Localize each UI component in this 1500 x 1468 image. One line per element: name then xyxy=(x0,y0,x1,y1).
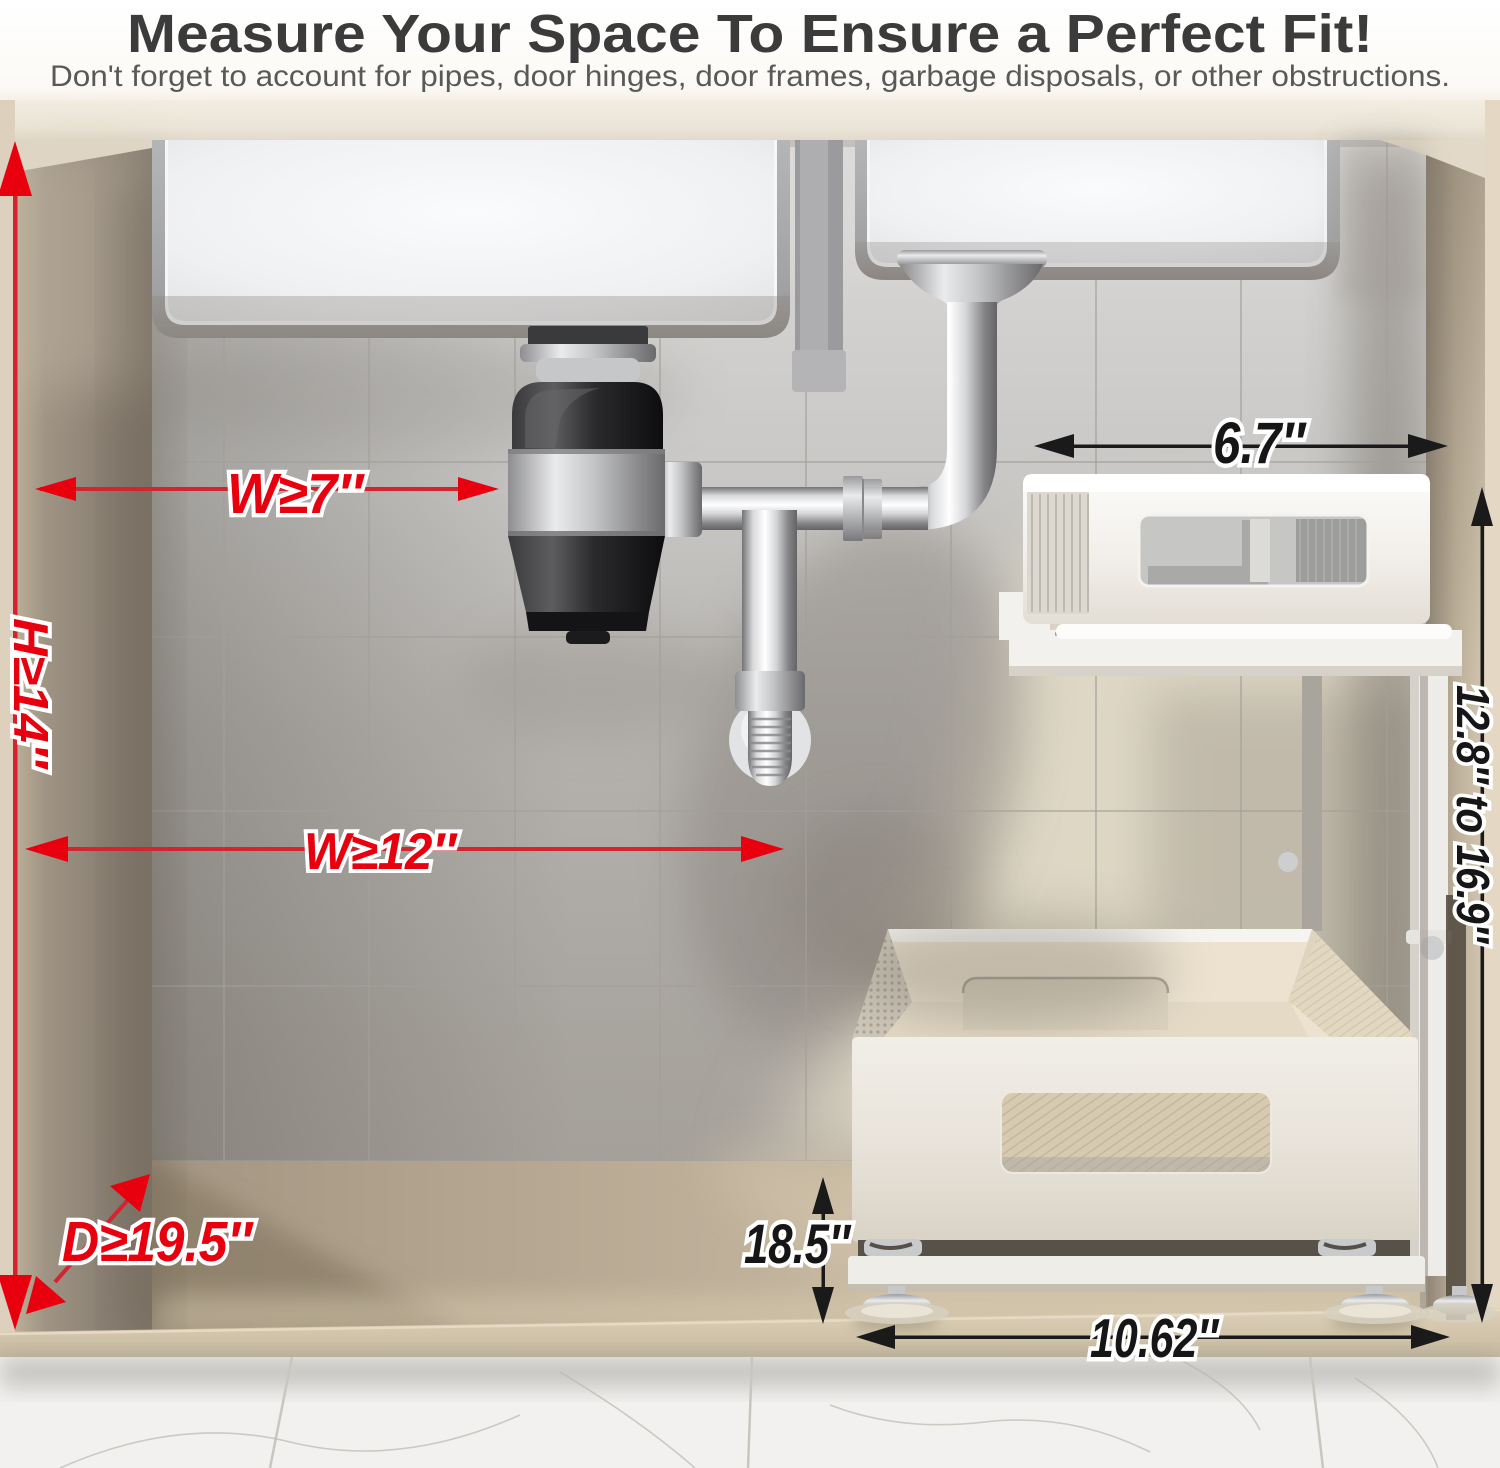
svg-text:18.5″: 18.5″ xyxy=(744,1212,852,1275)
svg-text:Measure Your Space To Ensure a: Measure Your Space To Ensure a Perfect F… xyxy=(127,4,1373,64)
svg-text:D≥19.5″: D≥19.5″ xyxy=(62,1210,254,1274)
svg-text:W≥7″: W≥7″ xyxy=(227,462,366,526)
svg-text:6.7″: 6.7″ xyxy=(1213,411,1307,476)
svg-text:W≥12″: W≥12″ xyxy=(304,823,458,881)
svg-text:H≥14″: H≥14″ xyxy=(3,618,57,771)
svg-text:12.8″ to 16.9″: 12.8″ to 16.9″ xyxy=(1447,685,1499,945)
svg-text:Don't forget to account for pi: Don't forget to account for pipes, door … xyxy=(50,60,1450,93)
svg-text:10.62″: 10.62″ xyxy=(1090,1307,1220,1369)
